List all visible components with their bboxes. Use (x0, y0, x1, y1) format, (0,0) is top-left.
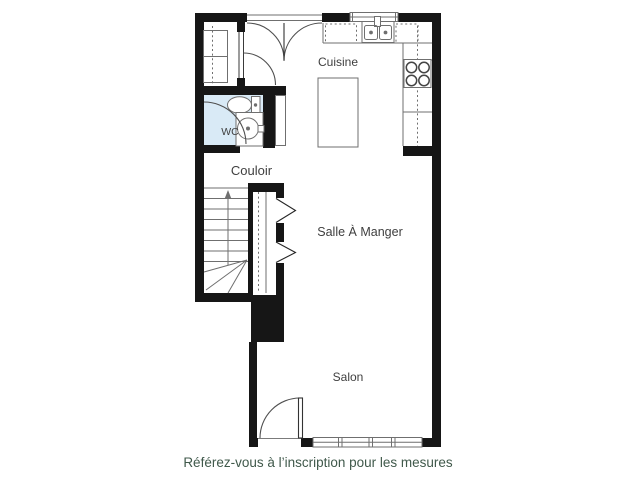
stove-icon (404, 60, 431, 88)
room-label-wc: WC (221, 126, 239, 138)
page-background (0, 0, 640, 480)
wc-sink-icon (236, 113, 264, 147)
right-wall (432, 13, 441, 447)
wc-right-wall (263, 95, 275, 148)
salon-door-leaf (299, 398, 303, 438)
kitchen-island-icon (318, 78, 358, 147)
duct-shaft (276, 96, 286, 146)
closet-partition-cap-bottom (237, 78, 245, 95)
chimney-block (251, 295, 284, 342)
left-wall (195, 13, 204, 302)
measurements-caption: Référez-vous à l’inscription pour les me… (183, 455, 453, 470)
stair-closet-right-wall-a (276, 192, 284, 198)
bottom-wall-left (249, 438, 258, 447)
room-label-salon: Salon (333, 370, 364, 384)
stair-closet-right-wall-c (276, 263, 284, 295)
room-label-salle-a-manger: Salle À Manger (317, 224, 402, 239)
floor-plan-page: Cuisine WC Couloir Salle À Manger Salon … (0, 0, 640, 480)
toilet-icon (228, 97, 261, 114)
bottom-wall-mid (301, 438, 313, 447)
kitchen-stub-wall (403, 146, 441, 156)
stair-closet-top-wall (248, 183, 284, 192)
wc-bottom-wall (195, 145, 240, 153)
caption-group: Référez-vous à l’inscription pour les me… (183, 455, 453, 470)
room-label-couloir: Couloir (231, 163, 273, 178)
room-label-cuisine: Cuisine (318, 55, 358, 69)
window-icon (313, 438, 422, 448)
salon-left-wall (249, 342, 257, 447)
stair-closet-right-wall-b (276, 223, 284, 242)
closet-partition-cap-top (237, 13, 245, 32)
stair-right-wall (248, 192, 253, 302)
bottom-wall-right (422, 438, 441, 447)
top-wall-mid (322, 13, 350, 22)
floor-plan-drawing: Cuisine WC Couloir Salle À Manger Salon … (0, 0, 640, 480)
stair-bottom-wall (195, 293, 253, 302)
